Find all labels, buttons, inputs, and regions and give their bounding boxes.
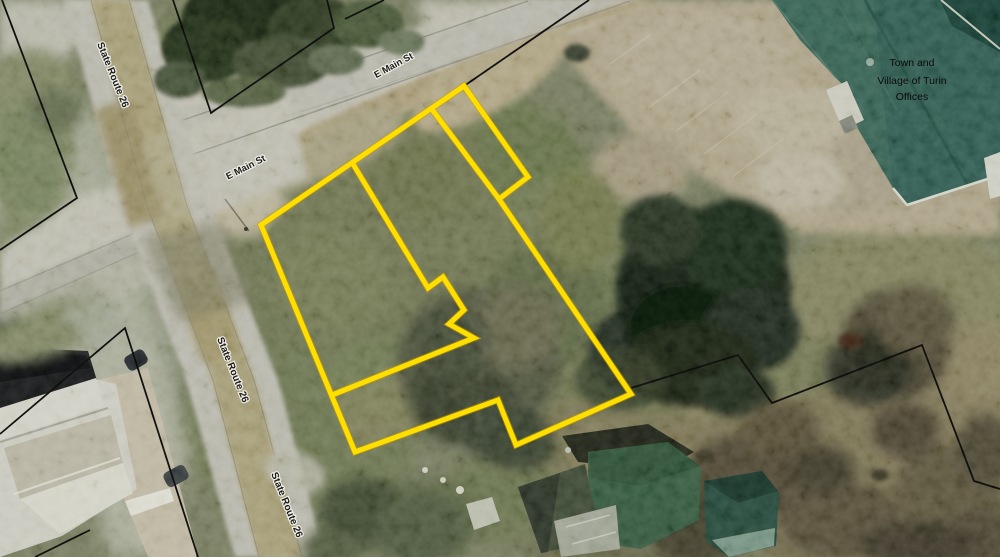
svg-text:Village of Turin: Village of Turin (877, 75, 946, 87)
svg-text:Town and: Town and (890, 57, 935, 69)
svg-text:Offices: Offices (896, 91, 928, 103)
